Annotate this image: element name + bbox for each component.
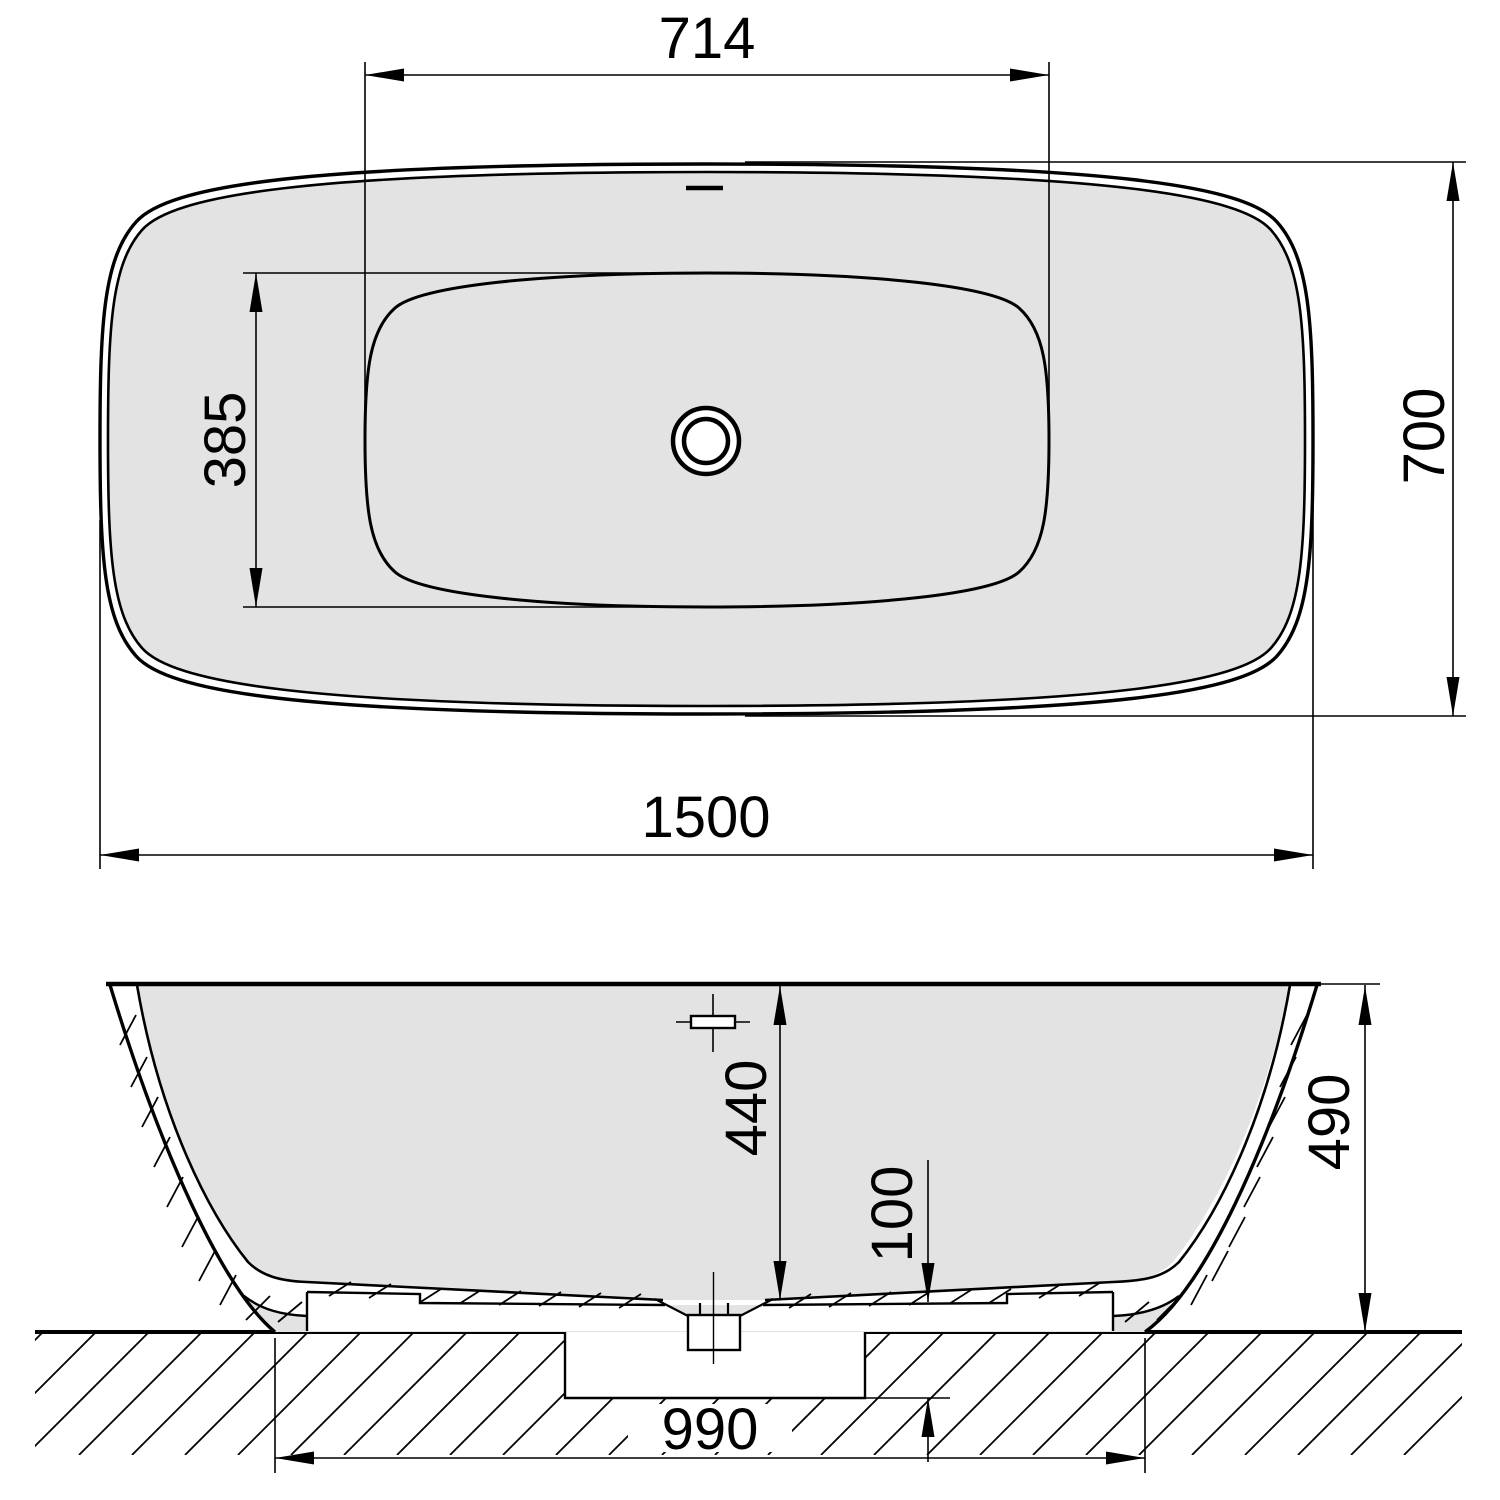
arrowhead <box>1359 986 1372 1025</box>
dim-label-overall-width: 700 <box>1392 388 1457 485</box>
drain-icon <box>673 408 739 474</box>
arrowhead <box>1274 849 1313 862</box>
dim-label-interior-depth: 440 <box>714 1060 779 1157</box>
dim-label-overall-length: 1500 <box>641 785 770 850</box>
arrowhead <box>365 69 404 82</box>
drawing-sheet: 714 385 700 1500 <box>0 0 1500 1500</box>
arrowhead <box>1447 677 1460 716</box>
arrowhead <box>1447 162 1460 201</box>
dim-label-recess-depth: 100 <box>860 1166 925 1263</box>
dim-label-overall-height: 490 <box>1297 1074 1362 1171</box>
dim-label-interior-width: 385 <box>193 392 258 489</box>
arrowhead <box>1359 1293 1372 1332</box>
arrowhead <box>1010 69 1049 82</box>
arrowhead <box>100 849 139 862</box>
dim-label-base-span: 990 <box>662 1397 759 1462</box>
front-view: 440 100 490 990 <box>0 984 1500 1473</box>
arrowhead <box>1106 1452 1145 1465</box>
arrowhead <box>275 1452 314 1465</box>
arrowhead <box>922 1398 935 1437</box>
dim-label-interior-length: 714 <box>659 6 756 71</box>
bathtub-technical-drawing: 714 385 700 1500 <box>0 0 1500 1500</box>
top-view: 714 385 700 1500 <box>100 6 1466 869</box>
